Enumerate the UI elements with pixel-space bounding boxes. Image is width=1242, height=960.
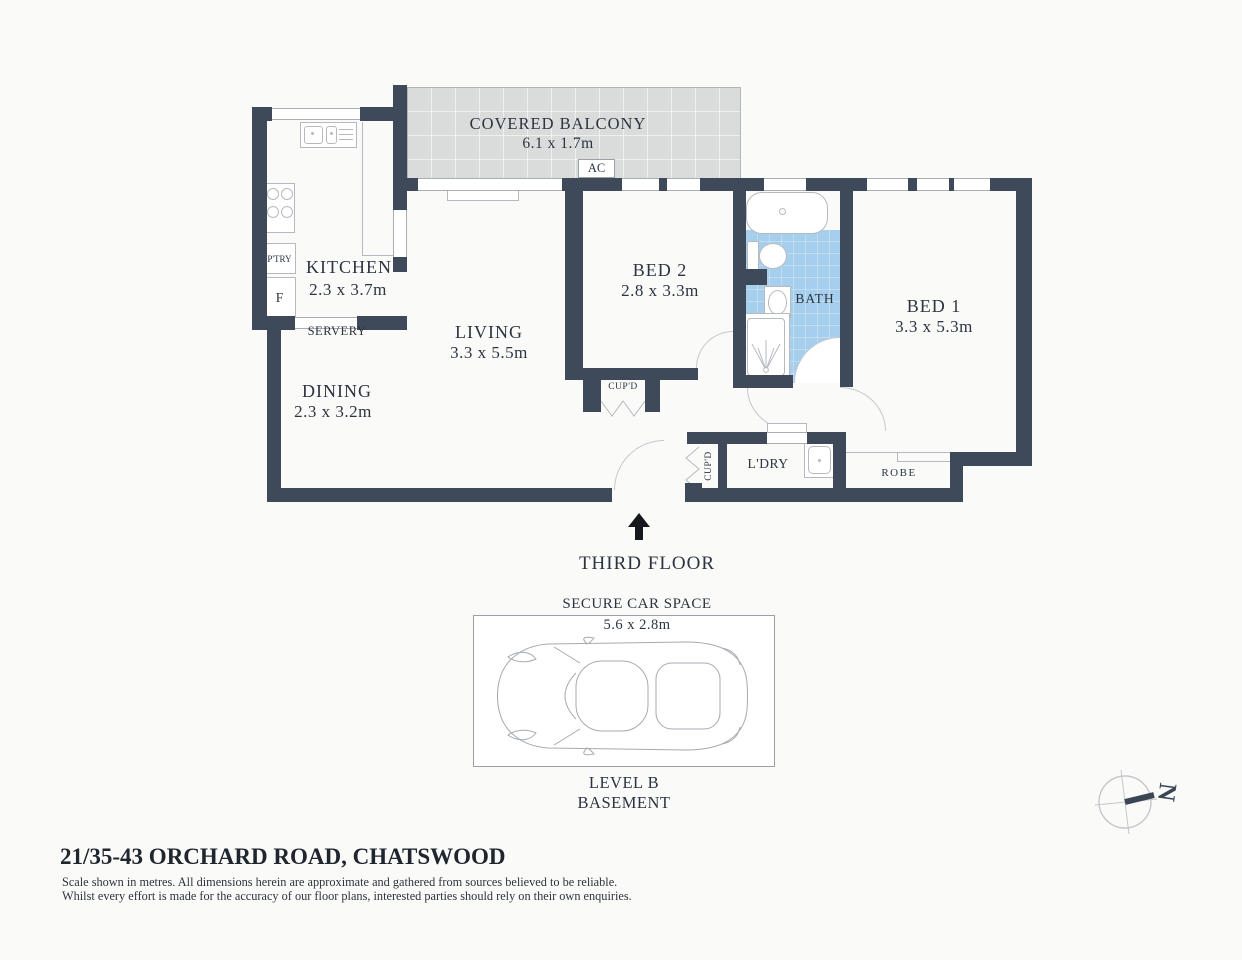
balcony-sliding-door xyxy=(418,178,562,191)
wall xyxy=(806,178,867,191)
wall xyxy=(908,178,917,191)
wall xyxy=(562,178,622,191)
sink-bowl xyxy=(304,126,323,144)
wall xyxy=(950,452,963,502)
kitchen-label: KITCHEN xyxy=(269,257,429,278)
cooktop-burner-icon xyxy=(267,206,279,218)
disclaimer-line: Whilst every effort is made for the accu… xyxy=(62,889,632,904)
wall xyxy=(267,488,612,502)
window xyxy=(393,210,407,257)
wall xyxy=(840,191,853,387)
bathtub-drain-icon xyxy=(779,208,786,215)
bed1-door-arc xyxy=(840,387,886,431)
level-label: LEVEL B xyxy=(473,773,775,793)
wall xyxy=(252,107,272,121)
wall xyxy=(1016,178,1032,466)
tap-icon xyxy=(311,132,314,135)
window xyxy=(272,108,360,120)
entry-cupboard-label: CUP'D xyxy=(704,438,714,494)
address-title: 21/35-43 ORCHARD ROAD, CHATSWOOD xyxy=(60,844,506,870)
window xyxy=(667,178,700,191)
bed2-label: BED 2 xyxy=(580,260,740,281)
floor-label: THIRD FLOOR xyxy=(547,553,747,575)
bed2-dims: 2.8 x 3.3m xyxy=(580,281,740,301)
wall xyxy=(833,432,846,490)
servery-label: SERVERY xyxy=(257,324,417,339)
wall xyxy=(252,107,267,330)
wall xyxy=(687,432,767,444)
wall xyxy=(685,488,963,502)
sink-bowl xyxy=(326,126,337,144)
tap-icon xyxy=(330,132,333,135)
laundry-door-opening xyxy=(767,432,807,444)
sink-drainer-line xyxy=(339,134,353,135)
sink-drainer-line xyxy=(339,139,353,140)
car-space-dims: 5.6 x 2.8m xyxy=(487,617,787,634)
cooktop-burner-icon xyxy=(267,188,279,200)
entry-arrow-icon xyxy=(628,513,650,527)
window xyxy=(867,178,908,191)
wall xyxy=(685,483,702,502)
wall xyxy=(733,375,793,388)
floor-plan-page: P'TRY F xyxy=(0,0,1242,960)
shower-spray-icon xyxy=(745,316,789,376)
balcony-label: COVERED BALCONY xyxy=(458,114,658,134)
disclaimer-line: Scale shown in metres. All dimensions he… xyxy=(62,875,617,890)
ac-unit-box: AC xyxy=(578,159,615,178)
bed1-label: BED 1 xyxy=(854,296,1014,317)
wall xyxy=(659,178,667,191)
dining-dims: 2.3 x 3.2m xyxy=(253,402,413,422)
window xyxy=(764,178,806,191)
entry-arrow-icon xyxy=(635,526,643,540)
bathtub xyxy=(746,192,828,234)
laundry-label: L'DRY xyxy=(715,456,821,472)
ac-label: AC xyxy=(588,161,605,176)
dining-label: DINING xyxy=(257,381,417,402)
robe-label: ROBE xyxy=(860,467,938,479)
window xyxy=(622,178,659,191)
wall xyxy=(565,368,698,380)
entry-door-arc xyxy=(614,440,664,490)
living-cupboard-label: CUP'D xyxy=(595,382,651,392)
bed2-door-arc xyxy=(696,331,733,368)
cupboard-bifold-icon xyxy=(600,399,646,419)
robe-outline xyxy=(897,461,950,462)
sliding-door-panel xyxy=(447,190,519,201)
compass-north-label: N xyxy=(1150,776,1182,808)
car-space-title: SECURE CAR SPACE xyxy=(487,596,787,613)
wall xyxy=(700,178,764,191)
kitchen-dims: 2.3 x 3.7m xyxy=(268,280,428,300)
sink-drainer-line xyxy=(339,129,353,130)
kitchen-counter-line xyxy=(362,255,394,256)
wall xyxy=(393,85,407,210)
toilet-cistern xyxy=(747,241,759,271)
car-top-view-icon xyxy=(490,635,758,757)
cooktop-burner-icon xyxy=(281,188,293,200)
living-dims: 3.3 x 5.5m xyxy=(409,343,569,363)
bed1-dims: 3.3 x 5.3m xyxy=(854,317,1014,337)
basement-label: BASEMENT xyxy=(473,793,775,813)
balcony-dims: 6.1 x 1.7m xyxy=(458,135,658,153)
robe-outline xyxy=(846,452,950,453)
window xyxy=(917,178,949,191)
wall xyxy=(395,178,418,191)
window xyxy=(954,178,990,191)
toilet-bowl xyxy=(759,243,787,269)
cooktop-burner-icon xyxy=(281,206,293,218)
bath-label: BATH xyxy=(781,291,849,307)
living-label: LIVING xyxy=(409,322,569,343)
kitchen-counter-line xyxy=(362,122,363,256)
